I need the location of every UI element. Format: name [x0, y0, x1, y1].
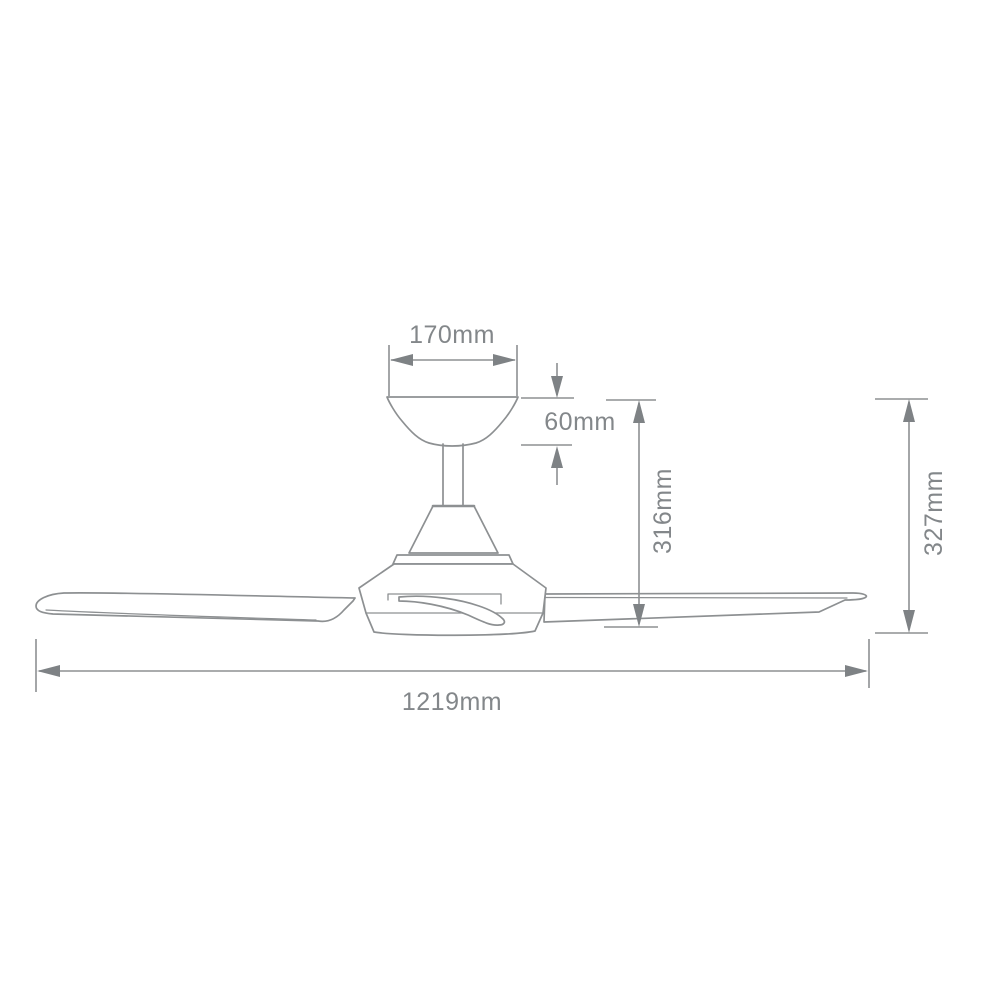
dimension-annotations: 170mm 60mm 316mm 327mm: [36, 321, 948, 716]
diagram-canvas: 170mm 60mm 316mm 327mm: [0, 0, 1000, 1000]
dim-overall-height: 327mm: [875, 399, 948, 633]
dim-label-height-to-blade: 316mm: [649, 468, 677, 554]
dim-label-canopy-height: 60mm: [544, 408, 615, 436]
dim-blade-sweep: 1219mm: [36, 639, 869, 716]
right-blade: [544, 593, 866, 622]
dim-label-blade-sweep: 1219mm: [402, 688, 502, 716]
dim-canopy-height: 60mm: [521, 363, 616, 485]
collar-ring: [393, 555, 513, 564]
arrowhead-up: [903, 399, 915, 422]
arrowhead-left: [390, 354, 413, 366]
arrowhead-up: [551, 446, 563, 468]
dim-label-overall-height: 327mm: [920, 470, 948, 556]
arrowhead-right: [493, 354, 516, 366]
arrowhead-down: [903, 610, 915, 633]
arrowhead-right: [845, 665, 868, 677]
left-blade: [36, 593, 355, 622]
fan-dimension-diagram: 170mm 60mm 316mm 327mm: [0, 0, 1000, 1000]
dim-label-canopy-width: 170mm: [409, 321, 495, 349]
mounting-cone: [409, 506, 498, 553]
downrod: [443, 444, 463, 506]
arrowhead-up: [633, 400, 645, 423]
arrowhead-down: [551, 376, 563, 398]
arrowhead-left: [37, 665, 60, 677]
fan-drawing: [36, 397, 866, 635]
canopy: [387, 397, 518, 446]
dim-canopy-width: 170mm: [389, 321, 517, 396]
